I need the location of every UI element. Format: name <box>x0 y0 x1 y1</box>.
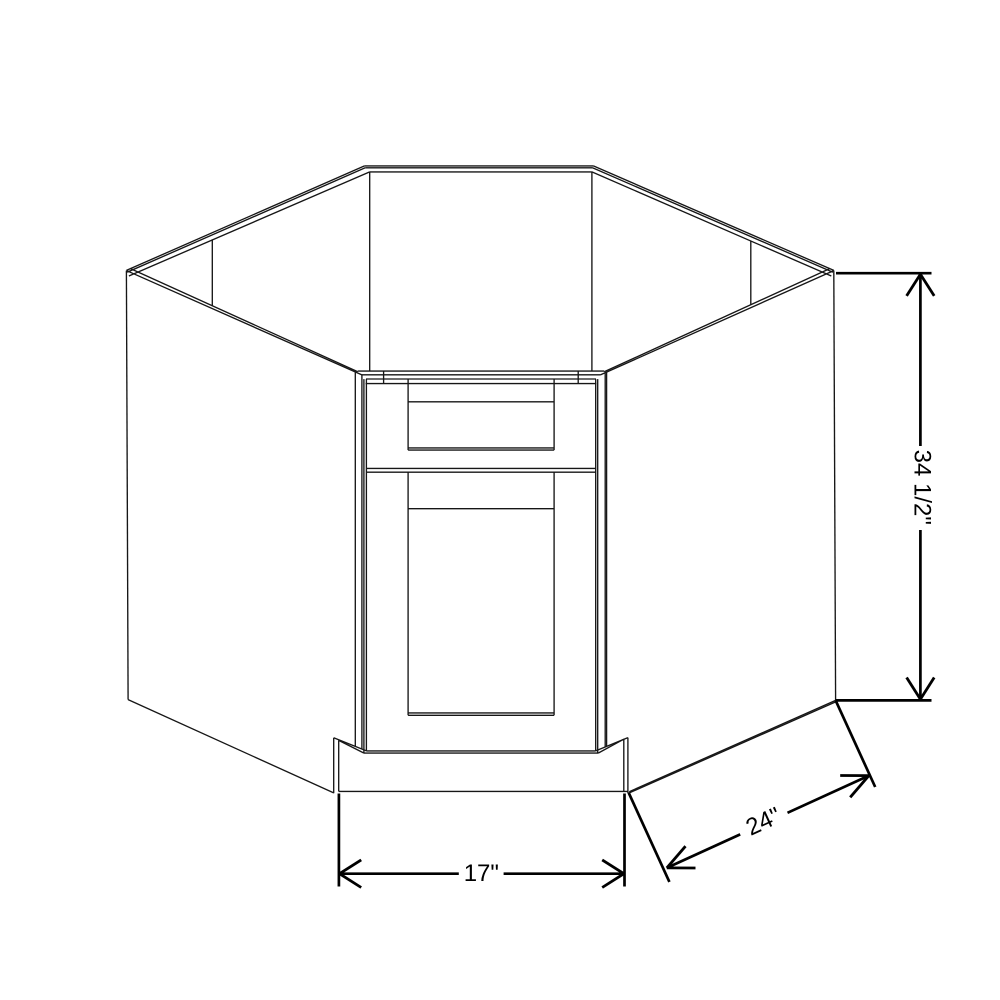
svg-text:34 1/2": 34 1/2" <box>908 450 935 525</box>
svg-text:17": 17" <box>464 860 499 887</box>
